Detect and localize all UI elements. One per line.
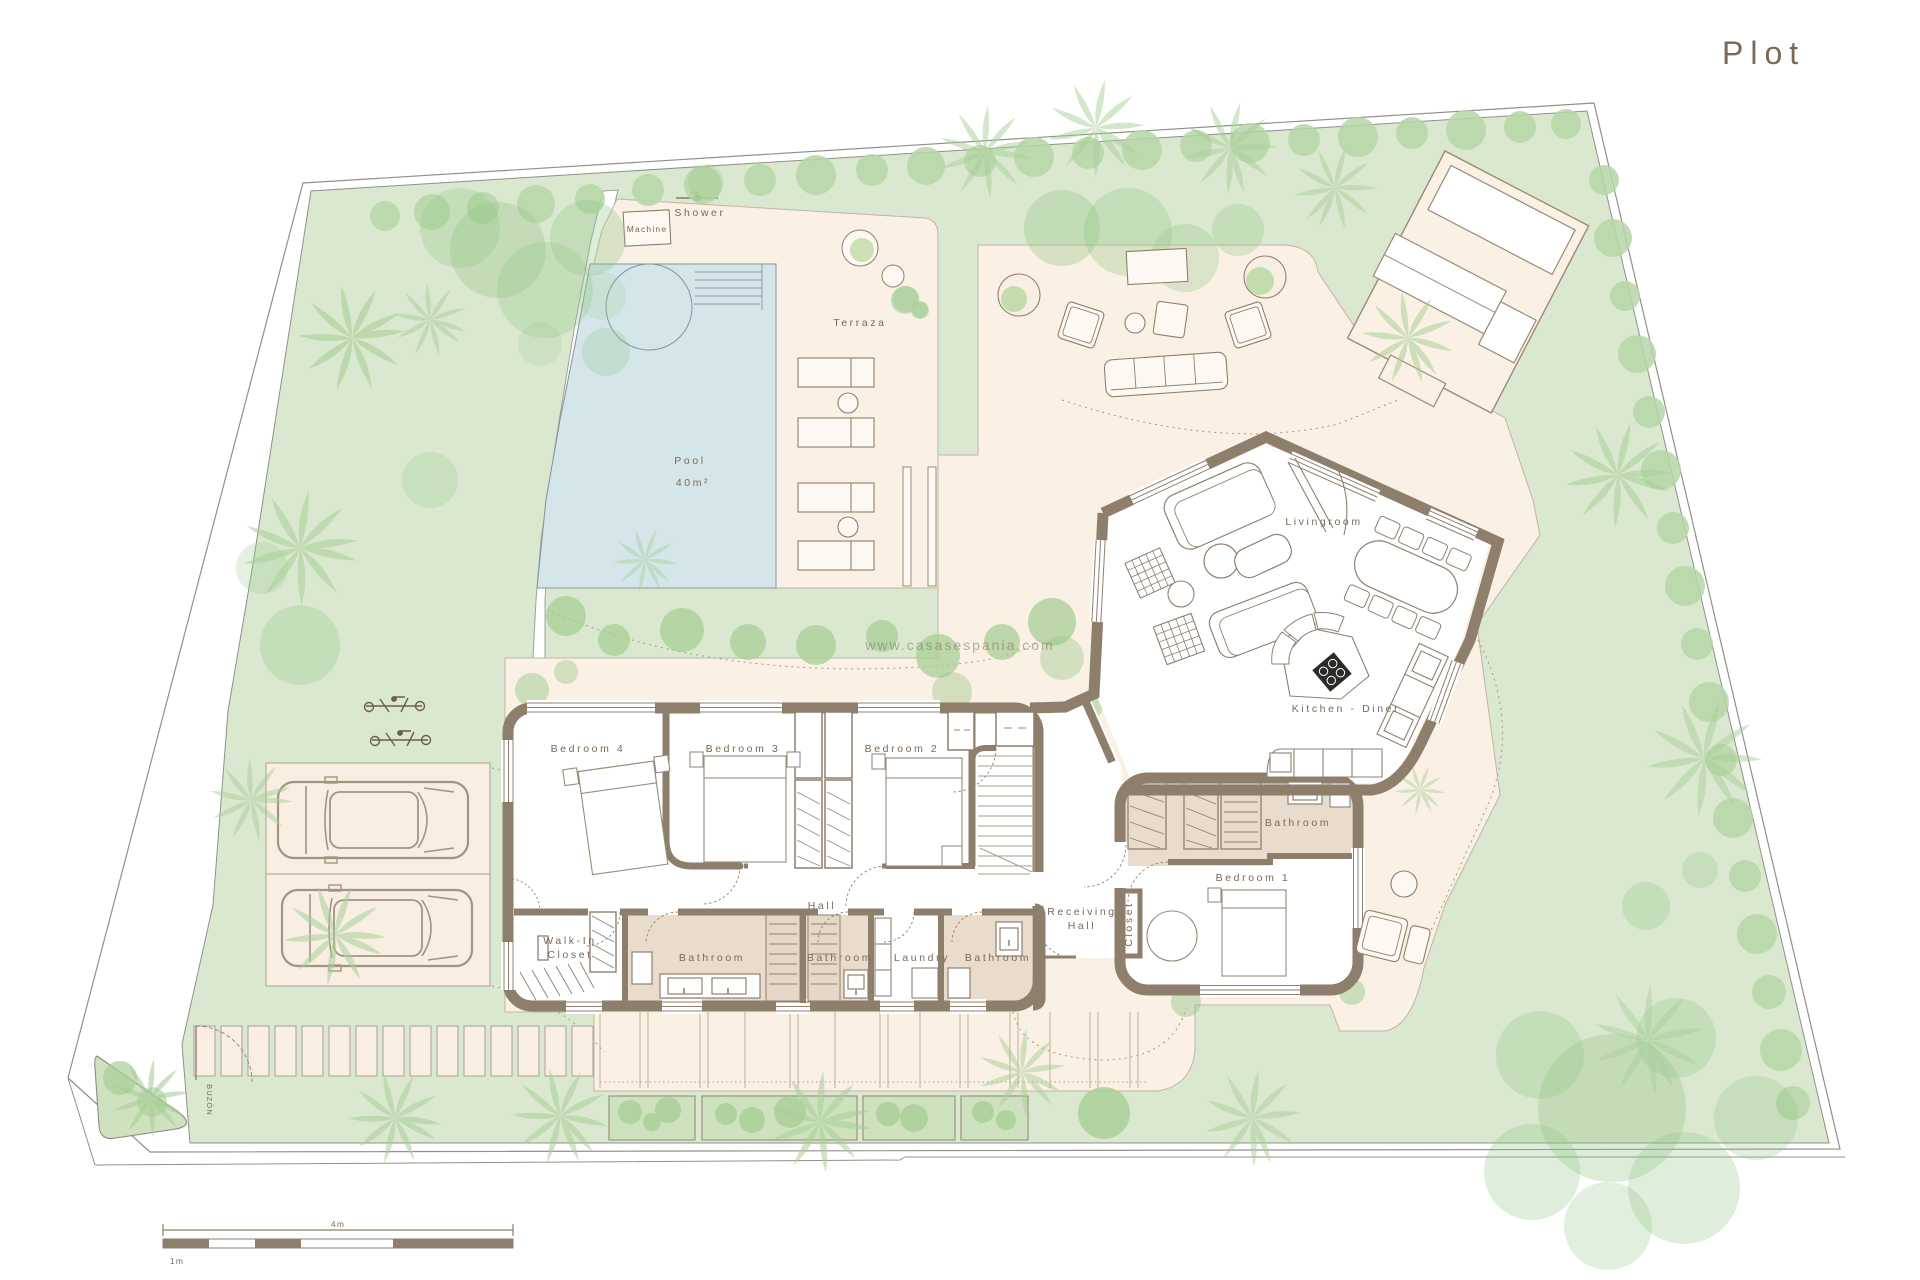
svg-text:Bedroom 4: Bedroom 4	[551, 743, 626, 755]
svg-text:Receiving: Receiving	[1047, 906, 1117, 918]
svg-text:Hall: Hall	[1068, 920, 1097, 932]
svg-text:Machine: Machine	[627, 224, 668, 234]
svg-text:1m: 1m	[170, 1256, 184, 1266]
svg-text:Bedroom 1: Bedroom 1	[1216, 872, 1291, 884]
svg-text:Closet: Closet	[547, 949, 592, 961]
svg-text:Laundry: Laundry	[894, 952, 950, 964]
svg-text:www.casasespania.com: www.casasespania.com	[864, 637, 1054, 653]
svg-text:Terraza: Terraza	[833, 317, 886, 329]
svg-text:Bathroom: Bathroom	[807, 952, 873, 964]
svg-text:Livingroom: Livingroom	[1285, 516, 1362, 528]
svg-text:4m: 4m	[331, 1219, 345, 1229]
svg-text:Bathroom: Bathroom	[965, 952, 1031, 964]
svg-text:Closet: Closet	[1123, 901, 1135, 946]
svg-text:BUZÓN: BUZÓN	[205, 1084, 214, 1116]
svg-text:Bedroom 3: Bedroom 3	[706, 743, 781, 755]
svg-text:Bedroom 2: Bedroom 2	[865, 743, 940, 755]
svg-text:Plot: Plot	[1722, 35, 1805, 71]
svg-text:Hall: Hall	[808, 900, 837, 912]
svg-text:Walk-In: Walk-In	[543, 935, 596, 947]
svg-text:Pool: Pool	[674, 455, 705, 467]
svg-text:Kitchen - Diner: Kitchen - Diner	[1292, 703, 1400, 715]
svg-text:Shower: Shower	[674, 207, 725, 219]
svg-text:Bathroom: Bathroom	[1265, 817, 1331, 829]
svg-text:40m²: 40m²	[676, 477, 710, 489]
svg-text:Bathroom: Bathroom	[679, 952, 745, 964]
